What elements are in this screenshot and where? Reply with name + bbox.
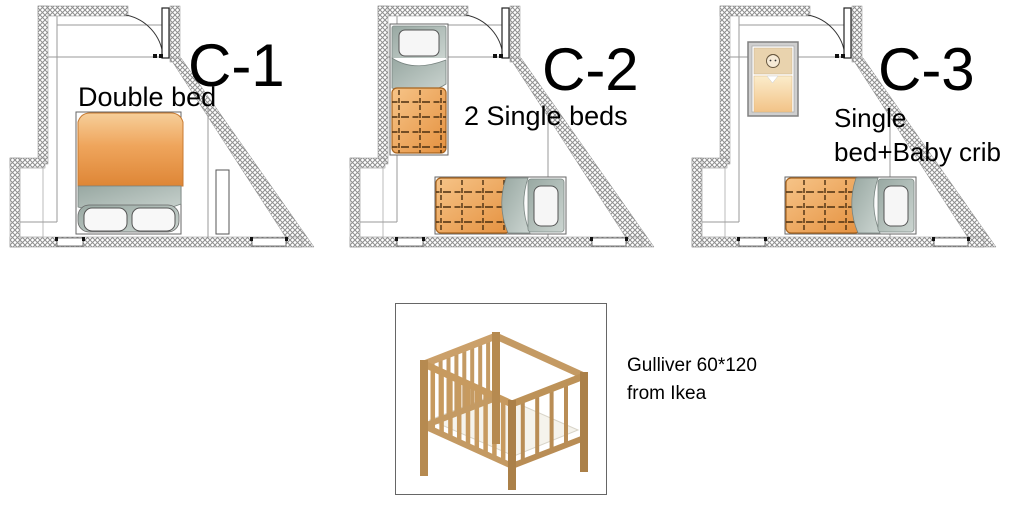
single-bed-vertical [390,24,448,155]
floor-plan-c2: C-2 2 Single beds [340,0,680,250]
floor-plan-sheet: C-1 Double bed [0,0,1024,505]
alcove-niche [20,168,43,237]
floor-plan-c3: C-3 Single bed+Baby crib [682,0,1024,250]
single-bed-horizontal [435,177,566,234]
door-swing [466,8,509,58]
product-caption-line1: Gulliver 60*120 [627,352,757,380]
plan-caption-c3-line2: bed+Baby crib [834,137,1001,167]
pillow [399,30,439,56]
door-swing [126,8,169,58]
pillow [884,186,908,226]
pillow-right [132,208,175,231]
opening-bottom-left [395,237,425,246]
plan-label-c3: C-3 [878,36,975,103]
window-bottom [932,237,970,246]
crib-product-photo [395,303,607,495]
crib-illustration [396,304,606,494]
opening-bottom-left [737,237,767,246]
pillow-left [84,208,127,231]
window-bottom [590,237,628,246]
product-caption: Gulliver 60*120 from Ikea [627,352,757,408]
baby-crib-plan [748,42,798,116]
window-bottom [250,237,288,246]
opening-bottom-left [55,237,85,246]
duvet [78,113,183,186]
plan-caption-c3-line1: Single [834,103,906,133]
double-bed [76,112,183,234]
alcove-niche [360,168,383,237]
plan-caption-c1: Double bed [78,82,216,112]
door-swing [808,8,851,58]
radiator [216,170,229,234]
pillow [534,186,558,226]
product-caption-line2: from Ikea [627,380,757,408]
alcove-niche [702,168,725,237]
floor-plan-c1: C-1 Double bed [0,0,340,250]
plan-caption-c2: 2 Single beds [464,101,628,131]
plan-label-c2: C-2 [542,36,639,103]
single-bed-horizontal [785,177,916,234]
